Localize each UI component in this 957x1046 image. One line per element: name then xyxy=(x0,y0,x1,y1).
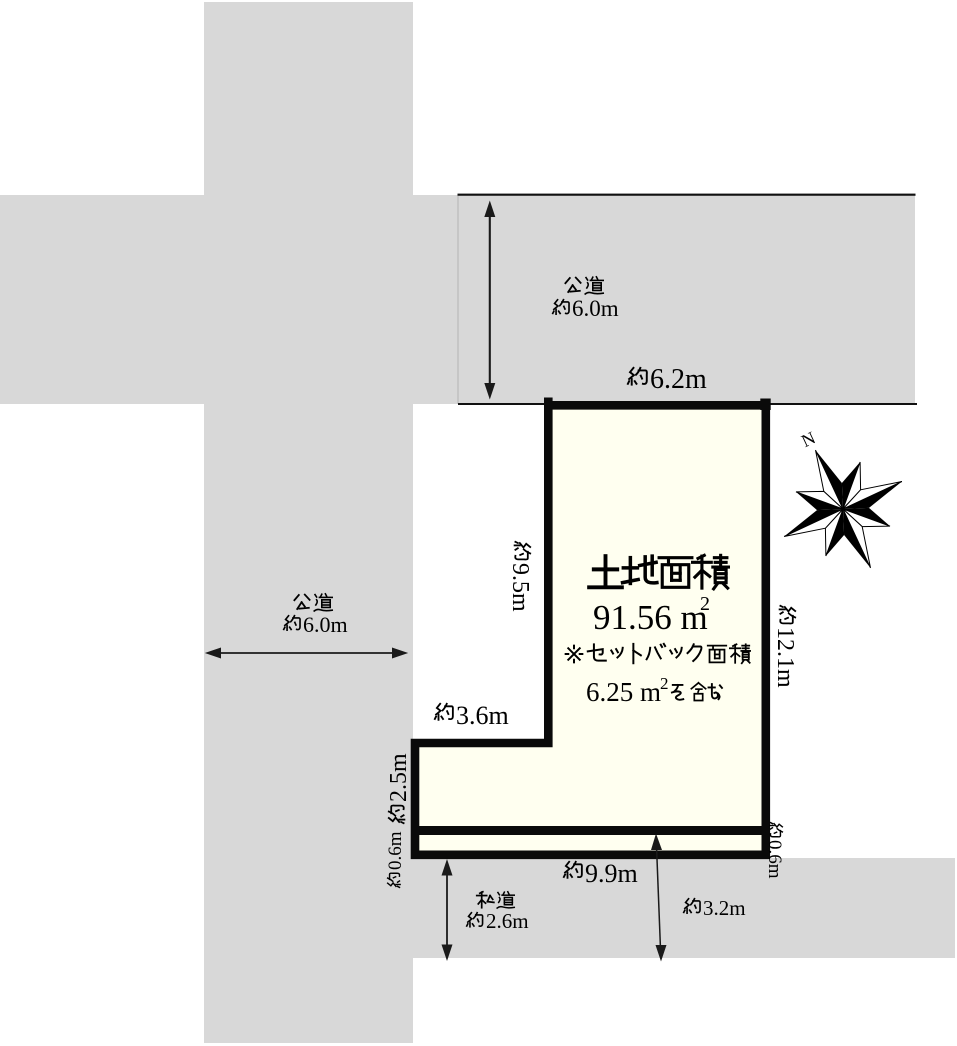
svg-text:3.6m: 3.6m xyxy=(456,701,509,730)
svg-text:2: 2 xyxy=(660,674,669,693)
svg-text:2: 2 xyxy=(700,593,710,615)
svg-text:0.6m: 0.6m xyxy=(764,840,785,879)
svg-text:6.0m: 6.0m xyxy=(572,296,619,321)
svg-text:0.6m: 0.6m xyxy=(385,831,406,870)
svg-text:91.56 m: 91.56 m xyxy=(593,598,708,637)
svg-text:2.6m: 2.6m xyxy=(486,909,529,933)
svg-text:6.0m: 6.0m xyxy=(303,612,348,637)
svg-text:6.2m: 6.2m xyxy=(650,364,707,395)
svg-text:12.1m: 12.1m xyxy=(772,627,798,688)
svg-text:2.5m: 2.5m xyxy=(386,753,412,802)
svg-text:9.9m: 9.9m xyxy=(585,859,638,888)
svg-text:9.5m: 9.5m xyxy=(507,563,533,612)
svg-text:6.25 m: 6.25 m xyxy=(586,677,661,707)
svg-text:3.2m: 3.2m xyxy=(703,896,746,920)
